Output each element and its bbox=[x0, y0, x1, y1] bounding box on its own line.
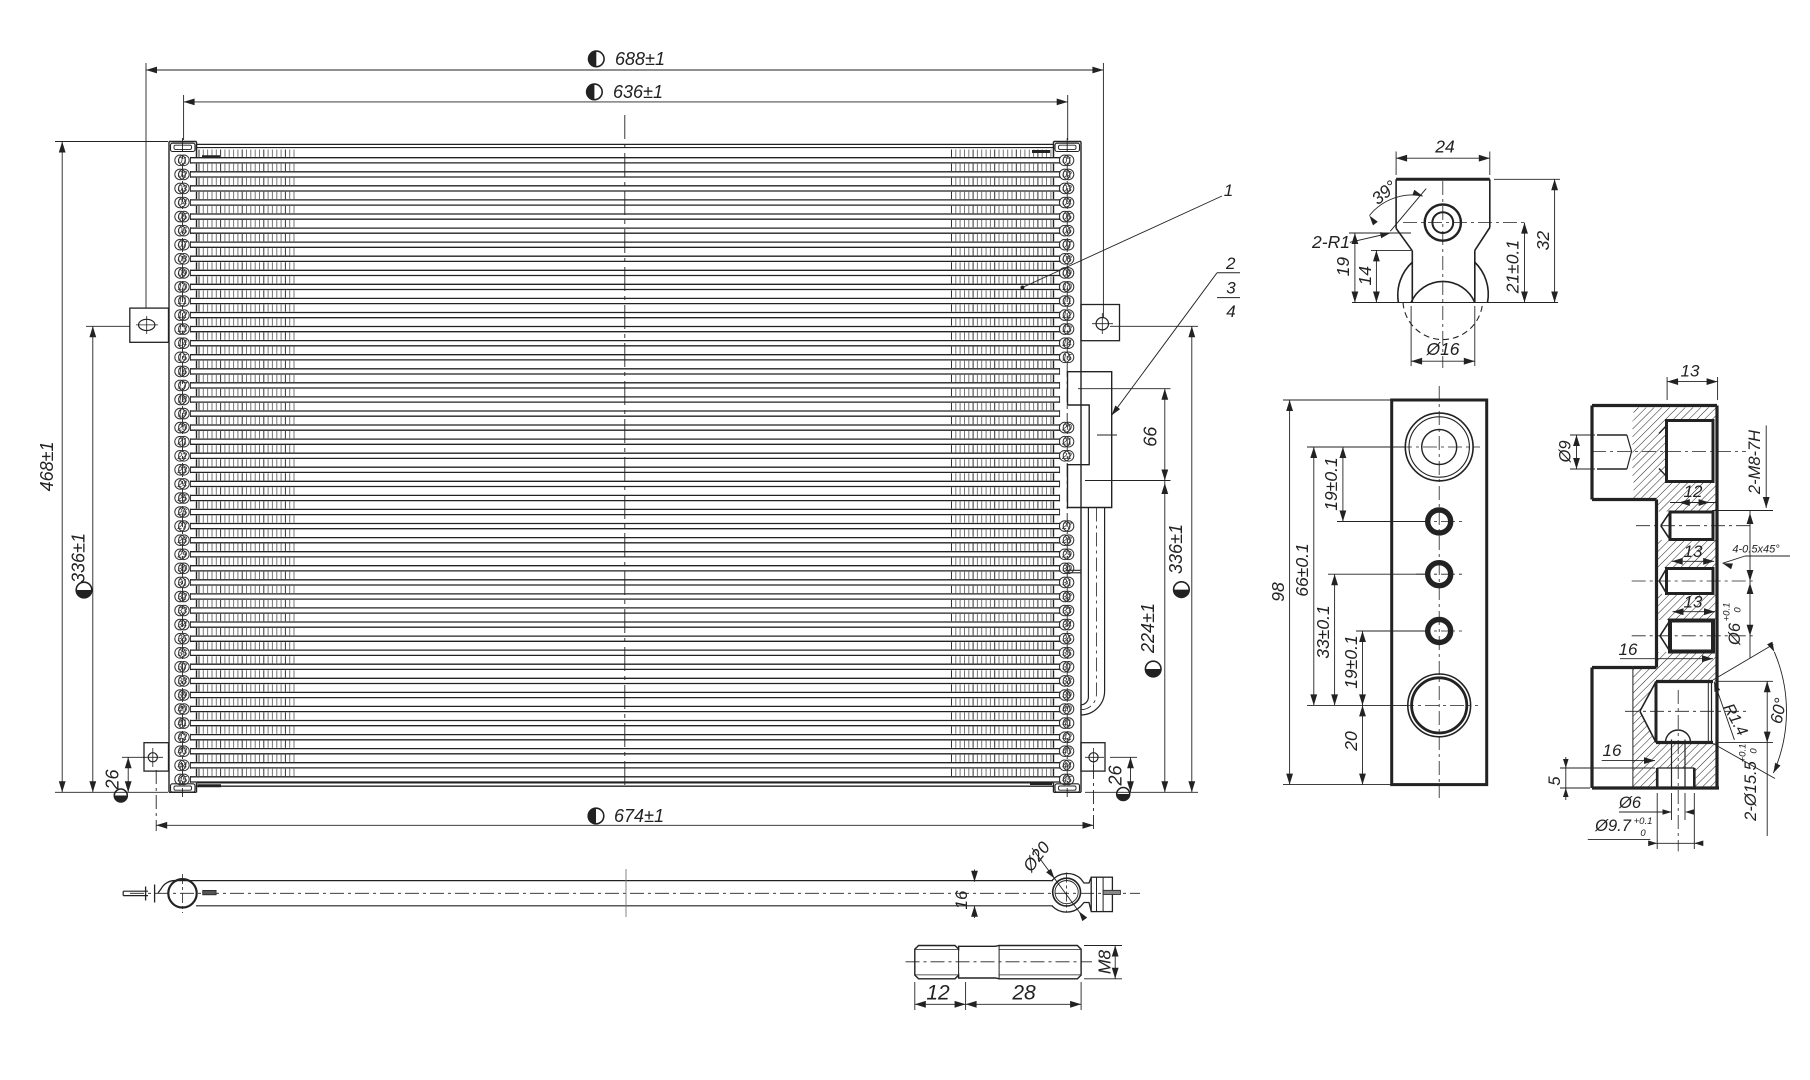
svg-text:+0.1: +0.1 bbox=[1738, 744, 1749, 763]
svg-text:6: 6 bbox=[182, 226, 187, 236]
svg-text:6: 6 bbox=[1067, 226, 1072, 236]
svg-text:8: 8 bbox=[1067, 254, 1072, 264]
svg-text:19: 19 bbox=[1333, 257, 1353, 277]
svg-text:2: 2 bbox=[1225, 254, 1236, 273]
svg-text:16: 16 bbox=[952, 890, 971, 909]
svg-text:2: 2 bbox=[1066, 451, 1072, 461]
svg-text:2-Ø15.5: 2-Ø15.5 bbox=[1742, 760, 1760, 821]
svg-text:13: 13 bbox=[1684, 593, 1703, 612]
svg-text:3: 3 bbox=[182, 324, 187, 334]
svg-text:14: 14 bbox=[1355, 266, 1375, 286]
svg-text:2: 2 bbox=[1066, 592, 1072, 602]
svg-text:66: 66 bbox=[1141, 426, 1161, 447]
svg-text:8: 8 bbox=[182, 676, 187, 686]
svg-text:4: 4 bbox=[182, 760, 187, 770]
svg-text:Ø16: Ø16 bbox=[1425, 339, 1459, 359]
svg-text:1: 1 bbox=[182, 718, 187, 728]
svg-text:1: 1 bbox=[1067, 296, 1072, 306]
svg-text:2: 2 bbox=[181, 310, 187, 320]
svg-text:3: 3 bbox=[1226, 279, 1236, 298]
svg-text:19±0.1: 19±0.1 bbox=[1321, 457, 1341, 510]
svg-text:4: 4 bbox=[1067, 760, 1072, 770]
svg-text:12: 12 bbox=[1684, 482, 1703, 501]
svg-text:M8: M8 bbox=[1095, 950, 1115, 975]
svg-text:3: 3 bbox=[182, 183, 187, 193]
svg-text:4: 4 bbox=[1226, 302, 1235, 321]
svg-text:0: 0 bbox=[1067, 704, 1072, 714]
svg-text:1: 1 bbox=[182, 155, 187, 165]
svg-text:0: 0 bbox=[1749, 748, 1760, 754]
svg-text:3: 3 bbox=[182, 606, 187, 616]
svg-text:0: 0 bbox=[182, 704, 187, 714]
svg-text:33±0.1: 33±0.1 bbox=[1313, 605, 1333, 658]
svg-text:1: 1 bbox=[1224, 181, 1233, 200]
svg-text:26: 26 bbox=[1106, 765, 1126, 787]
svg-text:1: 1 bbox=[182, 577, 187, 587]
svg-text:0: 0 bbox=[1067, 423, 1072, 433]
svg-text:26: 26 bbox=[103, 769, 123, 791]
svg-text:6: 6 bbox=[182, 366, 187, 376]
svg-text:Ø6: Ø6 bbox=[1618, 794, 1642, 812]
svg-text:3: 3 bbox=[1067, 324, 1072, 334]
svg-text:19±0.1: 19±0.1 bbox=[1341, 635, 1361, 688]
svg-text:0: 0 bbox=[1640, 828, 1646, 839]
svg-text:9: 9 bbox=[182, 690, 187, 700]
svg-text:2: 2 bbox=[181, 592, 187, 602]
svg-text:1: 1 bbox=[1067, 718, 1072, 728]
svg-text:336±1: 336±1 bbox=[69, 533, 89, 583]
svg-text:9: 9 bbox=[182, 549, 187, 559]
svg-text:4: 4 bbox=[182, 198, 187, 208]
svg-text:468±1: 468±1 bbox=[37, 441, 57, 491]
svg-text:1: 1 bbox=[1067, 155, 1072, 165]
svg-text:0: 0 bbox=[1067, 282, 1072, 292]
svg-text:20: 20 bbox=[1341, 731, 1361, 752]
svg-text:2: 2 bbox=[1066, 310, 1072, 320]
svg-text:8: 8 bbox=[1067, 676, 1072, 686]
svg-text:6: 6 bbox=[1067, 648, 1072, 658]
svg-text:16: 16 bbox=[1603, 741, 1622, 760]
svg-text:4: 4 bbox=[182, 338, 187, 348]
svg-text:1: 1 bbox=[1067, 577, 1072, 587]
svg-text:0: 0 bbox=[182, 563, 187, 573]
svg-text:16: 16 bbox=[1619, 640, 1638, 659]
svg-text:4: 4 bbox=[182, 620, 187, 630]
svg-text:1: 1 bbox=[182, 296, 187, 306]
svg-text:9: 9 bbox=[1067, 549, 1072, 559]
svg-text:4: 4 bbox=[1067, 620, 1072, 630]
svg-text:13: 13 bbox=[1684, 542, 1703, 561]
svg-text:1: 1 bbox=[1067, 437, 1072, 447]
svg-text:98: 98 bbox=[1268, 582, 1288, 602]
svg-text:Ø6: Ø6 bbox=[1726, 622, 1744, 646]
svg-text:3: 3 bbox=[1067, 606, 1072, 616]
svg-text:674±1: 674±1 bbox=[614, 806, 664, 826]
svg-text:28: 28 bbox=[1011, 982, 1036, 1005]
svg-text:8: 8 bbox=[1067, 535, 1072, 545]
svg-text:3: 3 bbox=[1067, 183, 1072, 193]
svg-text:2: 2 bbox=[1066, 732, 1072, 742]
svg-text:2-M8-7H: 2-M8-7H bbox=[1746, 430, 1764, 495]
svg-text:4-0.5x45°: 4-0.5x45° bbox=[1732, 544, 1780, 556]
svg-text:9: 9 bbox=[182, 409, 187, 419]
svg-text:24: 24 bbox=[1434, 137, 1455, 157]
svg-text:3: 3 bbox=[182, 746, 187, 756]
svg-text:21±0.1: 21±0.1 bbox=[1503, 240, 1523, 294]
svg-text:9: 9 bbox=[1067, 690, 1072, 700]
svg-text:0: 0 bbox=[182, 423, 187, 433]
svg-text:3: 3 bbox=[1067, 746, 1072, 756]
svg-text:9: 9 bbox=[182, 268, 187, 278]
svg-text:6: 6 bbox=[182, 648, 187, 658]
svg-text:+0.1: +0.1 bbox=[1722, 603, 1733, 622]
svg-text:Ø9.7: Ø9.7 bbox=[1594, 817, 1632, 835]
svg-text:2: 2 bbox=[181, 169, 187, 179]
svg-text:8: 8 bbox=[182, 254, 187, 264]
svg-text:4: 4 bbox=[1067, 338, 1072, 348]
svg-text:13: 13 bbox=[1681, 362, 1700, 381]
svg-text:3: 3 bbox=[182, 465, 187, 475]
svg-text:12: 12 bbox=[926, 982, 950, 1005]
svg-text:2: 2 bbox=[181, 451, 187, 461]
svg-text:2: 2 bbox=[1066, 169, 1072, 179]
svg-text:636±1: 636±1 bbox=[613, 82, 663, 102]
svg-text:2: 2 bbox=[181, 732, 187, 742]
svg-text:0: 0 bbox=[1733, 607, 1744, 613]
svg-text:0: 0 bbox=[182, 282, 187, 292]
svg-text:224±1: 224±1 bbox=[1138, 603, 1158, 654]
svg-text:6: 6 bbox=[182, 507, 187, 517]
svg-text:2-R1: 2-R1 bbox=[1311, 232, 1350, 252]
svg-text:336±1: 336±1 bbox=[1166, 524, 1186, 574]
svg-text:66±0.1: 66±0.1 bbox=[1292, 543, 1312, 596]
svg-text:+0.1: +0.1 bbox=[1634, 816, 1653, 827]
svg-text:8: 8 bbox=[182, 395, 187, 405]
svg-text:8: 8 bbox=[182, 535, 187, 545]
svg-text:0: 0 bbox=[1067, 563, 1072, 573]
svg-text:Ø9: Ø9 bbox=[1557, 440, 1575, 463]
svg-text:1: 1 bbox=[182, 437, 187, 447]
svg-text:4: 4 bbox=[1067, 198, 1072, 208]
svg-text:5: 5 bbox=[1546, 776, 1564, 786]
svg-text:4: 4 bbox=[182, 479, 187, 489]
svg-text:9: 9 bbox=[1067, 268, 1072, 278]
svg-text:688±1: 688±1 bbox=[615, 49, 665, 69]
svg-text:32: 32 bbox=[1533, 231, 1553, 251]
